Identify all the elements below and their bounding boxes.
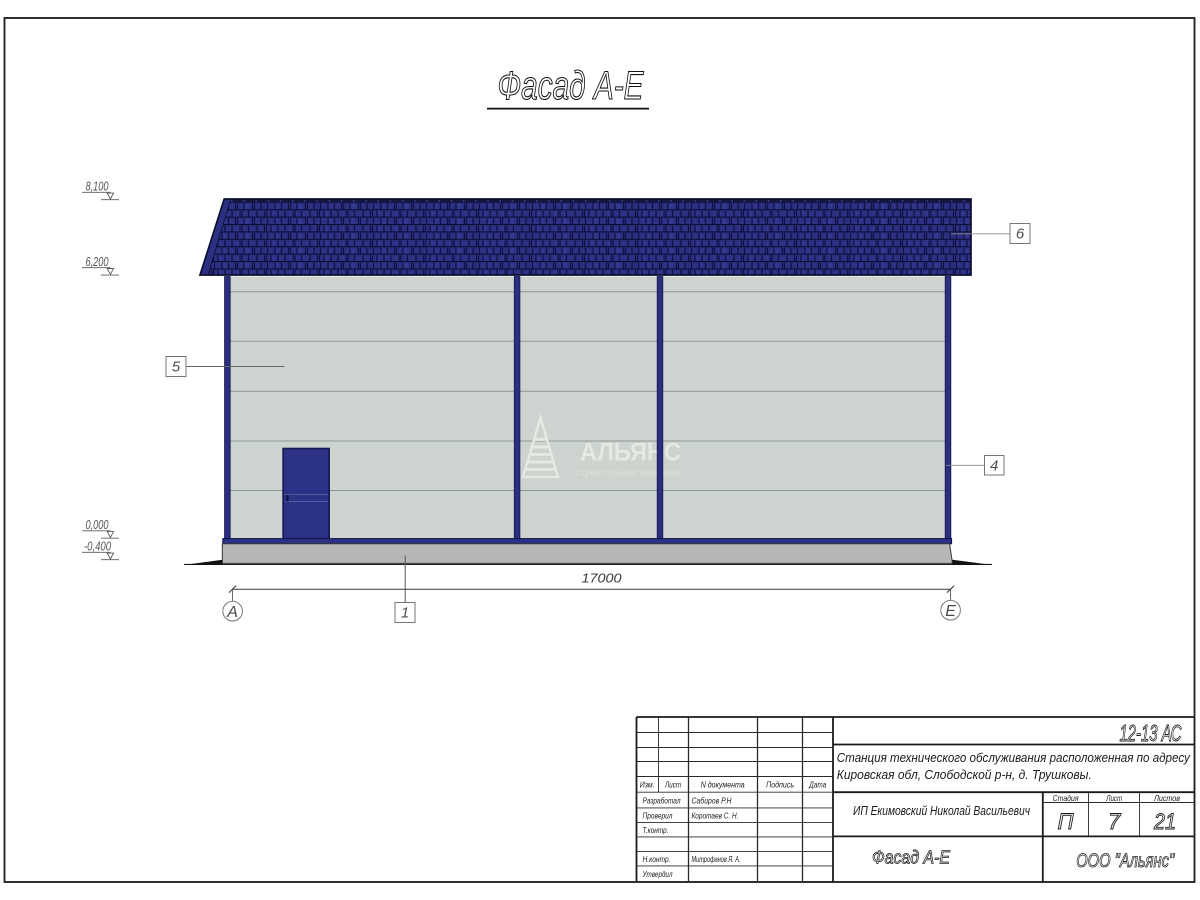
svg-text:строительная компания: строительная компания — [576, 468, 681, 479]
svg-text:-0,400: -0,400 — [84, 539, 112, 554]
svg-text:Изм.: Изм. — [640, 780, 655, 789]
svg-text:Станция технического обслужива: Станция технического обслуживания распол… — [837, 750, 1191, 765]
svg-text:0,000: 0,000 — [86, 517, 110, 532]
svg-text:Коротаев С. Н.: Коротаев С. Н. — [692, 811, 739, 821]
svg-text:Стадия: Стадия — [1053, 793, 1079, 803]
svg-text:П: П — [1058, 809, 1074, 834]
svg-text:4: 4 — [990, 457, 998, 474]
svg-text:А: А — [226, 604, 238, 621]
svg-text:Фасад А-Е: Фасад А-Е — [498, 64, 645, 108]
svg-text:Подпись: Подпись — [766, 780, 794, 789]
svg-text:21: 21 — [1153, 809, 1176, 834]
svg-text:Утвердил: Утвердил — [642, 869, 673, 879]
svg-text:Е: Е — [945, 603, 956, 620]
svg-text:17000: 17000 — [582, 572, 622, 586]
svg-text:N документа: N документа — [701, 780, 745, 789]
svg-text:Дата: Дата — [808, 780, 826, 789]
svg-text:Разработал: Разработал — [643, 796, 681, 806]
svg-text:Сабиров Р.Н: Сабиров Р.Н — [692, 796, 733, 806]
svg-text:ООО "Альянс": ООО "Альянс" — [1076, 850, 1175, 872]
svg-text:ИП Екимовский Николай Васильев: ИП Екимовский Николай Васильевич — [853, 803, 1030, 818]
svg-text:Н.контр.: Н.контр. — [643, 854, 671, 864]
svg-text:Лист: Лист — [1105, 793, 1122, 803]
svg-text:12-13 АС: 12-13 АС — [1120, 720, 1182, 746]
svg-text:Листов: Листов — [1153, 793, 1180, 803]
svg-text:8,100: 8,100 — [86, 179, 110, 194]
svg-text:Т.контр.: Т.контр. — [643, 825, 669, 835]
svg-text:АЛЬЯНС: АЛЬЯНС — [580, 438, 681, 466]
svg-text:7: 7 — [1108, 809, 1121, 834]
svg-text:6: 6 — [1016, 226, 1025, 243]
svg-text:5: 5 — [172, 359, 181, 376]
svg-text:Кировская обл, Слободской р-н,: Кировская обл, Слободской р-н, д. Трушко… — [837, 767, 1092, 782]
svg-text:Проверил: Проверил — [643, 811, 673, 821]
svg-text:Лист: Лист — [664, 780, 681, 789]
svg-text:1: 1 — [401, 605, 409, 622]
svg-text:Фасад А-Е: Фасад А-Е — [872, 848, 951, 868]
svg-text:Митрофанов Я. А.: Митрофанов Я. А. — [692, 854, 741, 864]
svg-text:6,200: 6,200 — [86, 254, 110, 269]
